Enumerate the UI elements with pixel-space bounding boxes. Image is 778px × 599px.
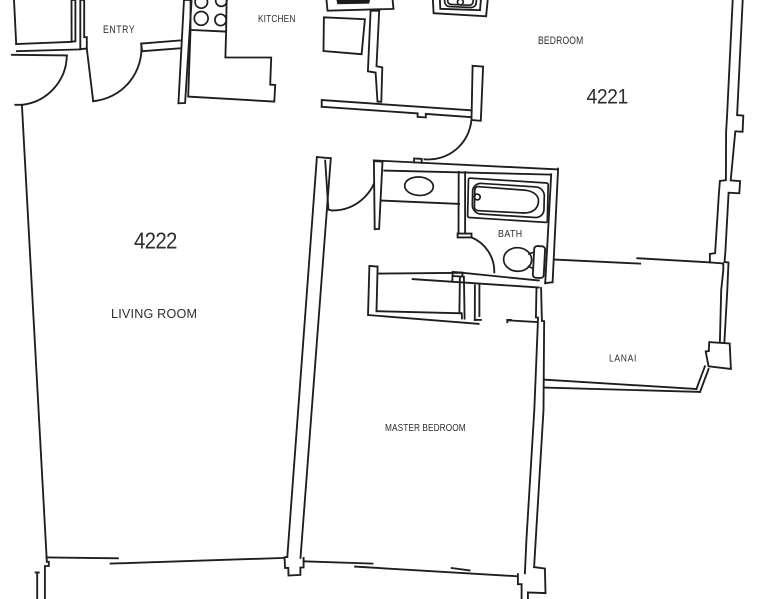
svg-text:4221: 4221 bbox=[587, 86, 628, 109]
svg-text:BATH: BATH bbox=[498, 229, 523, 240]
svg-text:KITCHEN: KITCHEN bbox=[258, 13, 295, 25]
svg-text:4222: 4222 bbox=[134, 227, 177, 254]
svg-text:LANAI: LANAI bbox=[609, 352, 637, 364]
svg-text:BEDROOM: BEDROOM bbox=[538, 35, 583, 47]
svg-text:MASTER BEDROOM: MASTER BEDROOM bbox=[385, 422, 466, 434]
svg-text:LIVING ROOM: LIVING ROOM bbox=[111, 306, 197, 321]
svg-text:ENTRY: ENTRY bbox=[103, 24, 135, 36]
